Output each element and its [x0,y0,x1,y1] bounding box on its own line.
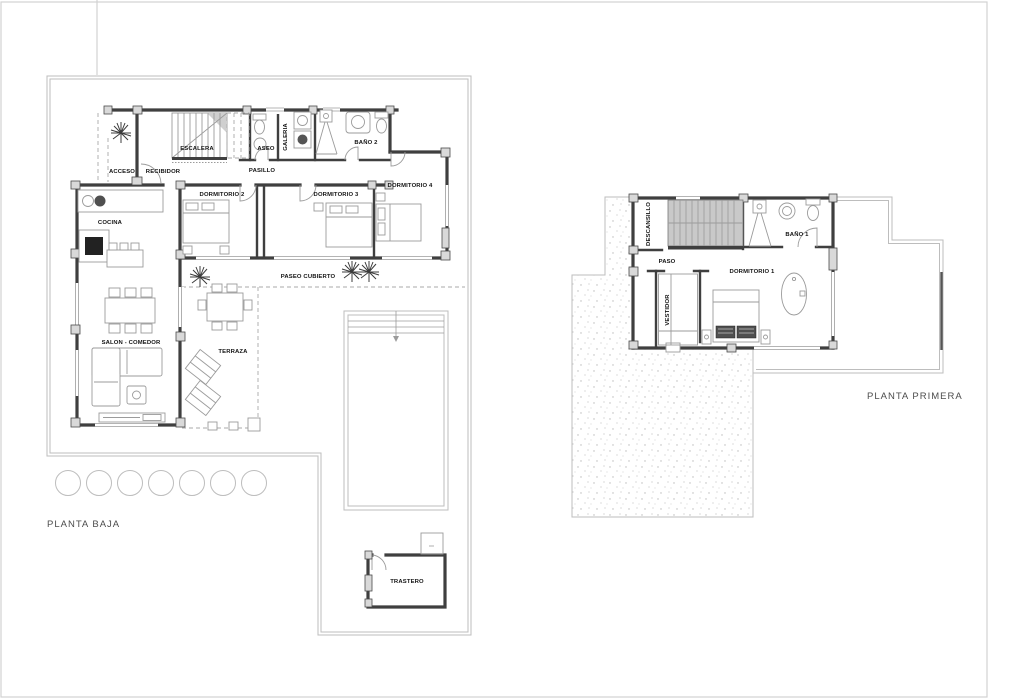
sink-icon [779,203,795,219]
bathtub [782,273,807,315]
toilet-tank [806,199,820,205]
dining-table [105,288,155,333]
room-label-galeria: GALERIA [283,123,289,151]
room-label-pasillo: PASILLO [249,168,275,174]
room-label-trastero: TRASTERO [390,579,424,585]
room-label-bano1: BAÑO 1 [785,231,809,238]
bano1-fixtures [749,199,820,247]
room-label-dormitorio3: DORMITORIO 3 [314,192,359,198]
planta-primera-plan: DESCANSILLO PASO VESTIDOR DORMITORIO 1 B… [572,194,963,517]
room-label-descansillo: DESCANSILLO [646,202,652,246]
toilet-tank [253,114,266,120]
plant-icon [359,261,379,282]
galeria-appliances [294,112,311,148]
terrace-table [198,284,252,330]
shower-head [320,110,332,122]
bed-dormitorio1 [702,290,770,344]
toilet-icon [255,120,265,134]
bed-dormitorio4 [376,193,421,241]
room-label-terraza: TERRAZA [218,349,248,355]
room-label-dormitorio4: DORMITORIO 4 [388,183,433,189]
oven-icon [85,237,103,255]
plant-icon [111,122,131,143]
side-table [127,386,146,404]
shower-icon [749,213,771,246]
room-label-dormitorio1: DORMITORIO 1 [730,269,775,275]
tv-cabinet [99,413,165,422]
kitchen-fixtures [78,190,163,267]
breakfast-bar [107,250,143,267]
toilet-tank [375,112,388,118]
nightstand [761,330,770,344]
toilet-icon [377,119,387,133]
garden-circles [56,471,267,496]
room-label-escalera: ESCALERA [180,146,214,152]
room-label-bano2: BAÑO 2 [354,139,378,146]
shower-icon [316,122,337,154]
plan-title-planta-primera: PLANTA PRIMERA [867,391,963,402]
floor-plan-sheet: ACCESO RECIBIDOR ESCALERA ASEO GALERIA B… [0,0,1024,699]
room-label-aseo: ASEO [257,146,275,152]
room-label-recibidor: RECIBIDOR [146,169,181,175]
staircase-first [668,200,743,250]
bano2-fixtures [316,110,388,154]
room-label-paso: PASO [659,259,676,265]
room-label-paseo-cubierto: PASEO CUBIERTO [281,274,336,280]
nightstand [702,330,711,344]
planta-baja-plan: ACCESO RECIBIDOR ESCALERA ASEO GALERIA B… [47,76,471,635]
plant-icon [190,266,210,287]
bed-dormitorio3 [314,203,372,247]
stepping-pads [208,418,260,431]
shower-head [753,200,766,213]
lounge-chair [185,350,220,385]
lounge-chair [185,381,220,416]
room-label-dormitorio2: DORMITORIO 2 [200,192,245,198]
toilet-icon [808,206,819,221]
room-label-cocina: COCINA [98,220,123,226]
staircase-ground [172,113,249,163]
room-label-salon-comedor: SALON - COMEDOR [102,340,161,346]
plan-title-planta-baja: PLANTA BAJA [47,519,120,530]
bed-dormitorio2 [183,200,229,254]
storage-room [365,533,445,607]
room-label-acceso: ACCESO [109,169,135,175]
kitchen-counter [78,190,163,212]
hob-icon [95,196,106,207]
room-label-vestidor: VESTIDOR [665,294,671,326]
swimming-pool [344,311,448,510]
aseo-fixtures [253,114,266,150]
floor-plan-drawing: ACCESO RECIBIDOR ESCALERA ASEO GALERIA B… [0,0,1024,699]
